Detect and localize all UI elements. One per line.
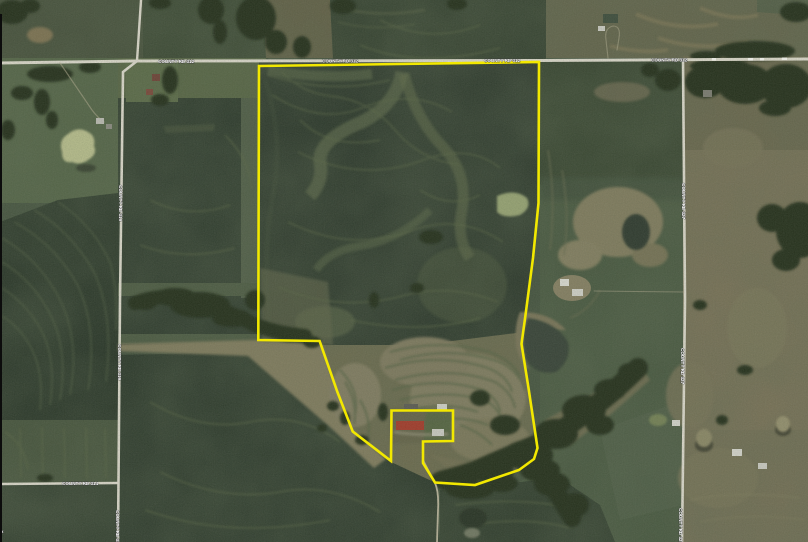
svg-text:COUNTY RD 327: COUNTY RD 327 (681, 183, 686, 220)
svg-text:COUNTY RD 312: COUNTY RD 312 (651, 58, 688, 63)
svg-text:COUNTY RD 327: COUNTY RD 327 (678, 508, 683, 542)
svg-text:COUNTY RD 312: COUNTY RD 312 (322, 59, 359, 64)
svg-text:COUNTY RD 312: COUNTY RD 312 (484, 58, 521, 63)
svg-text:COUNTY RD 319: COUNTY RD 319 (117, 344, 122, 381)
svg-text:COUNTY RD 327: COUNTY RD 327 (680, 348, 685, 385)
svg-text:COUNTY RD 314: COUNTY RD 314 (62, 481, 99, 486)
svg-text:COUNTY RD 319: COUNTY RD 319 (115, 510, 120, 542)
svg-text:COUNTY RD 319: COUNTY RD 319 (118, 185, 123, 222)
svg-text:COUNTY RD 312: COUNTY RD 312 (158, 59, 195, 64)
